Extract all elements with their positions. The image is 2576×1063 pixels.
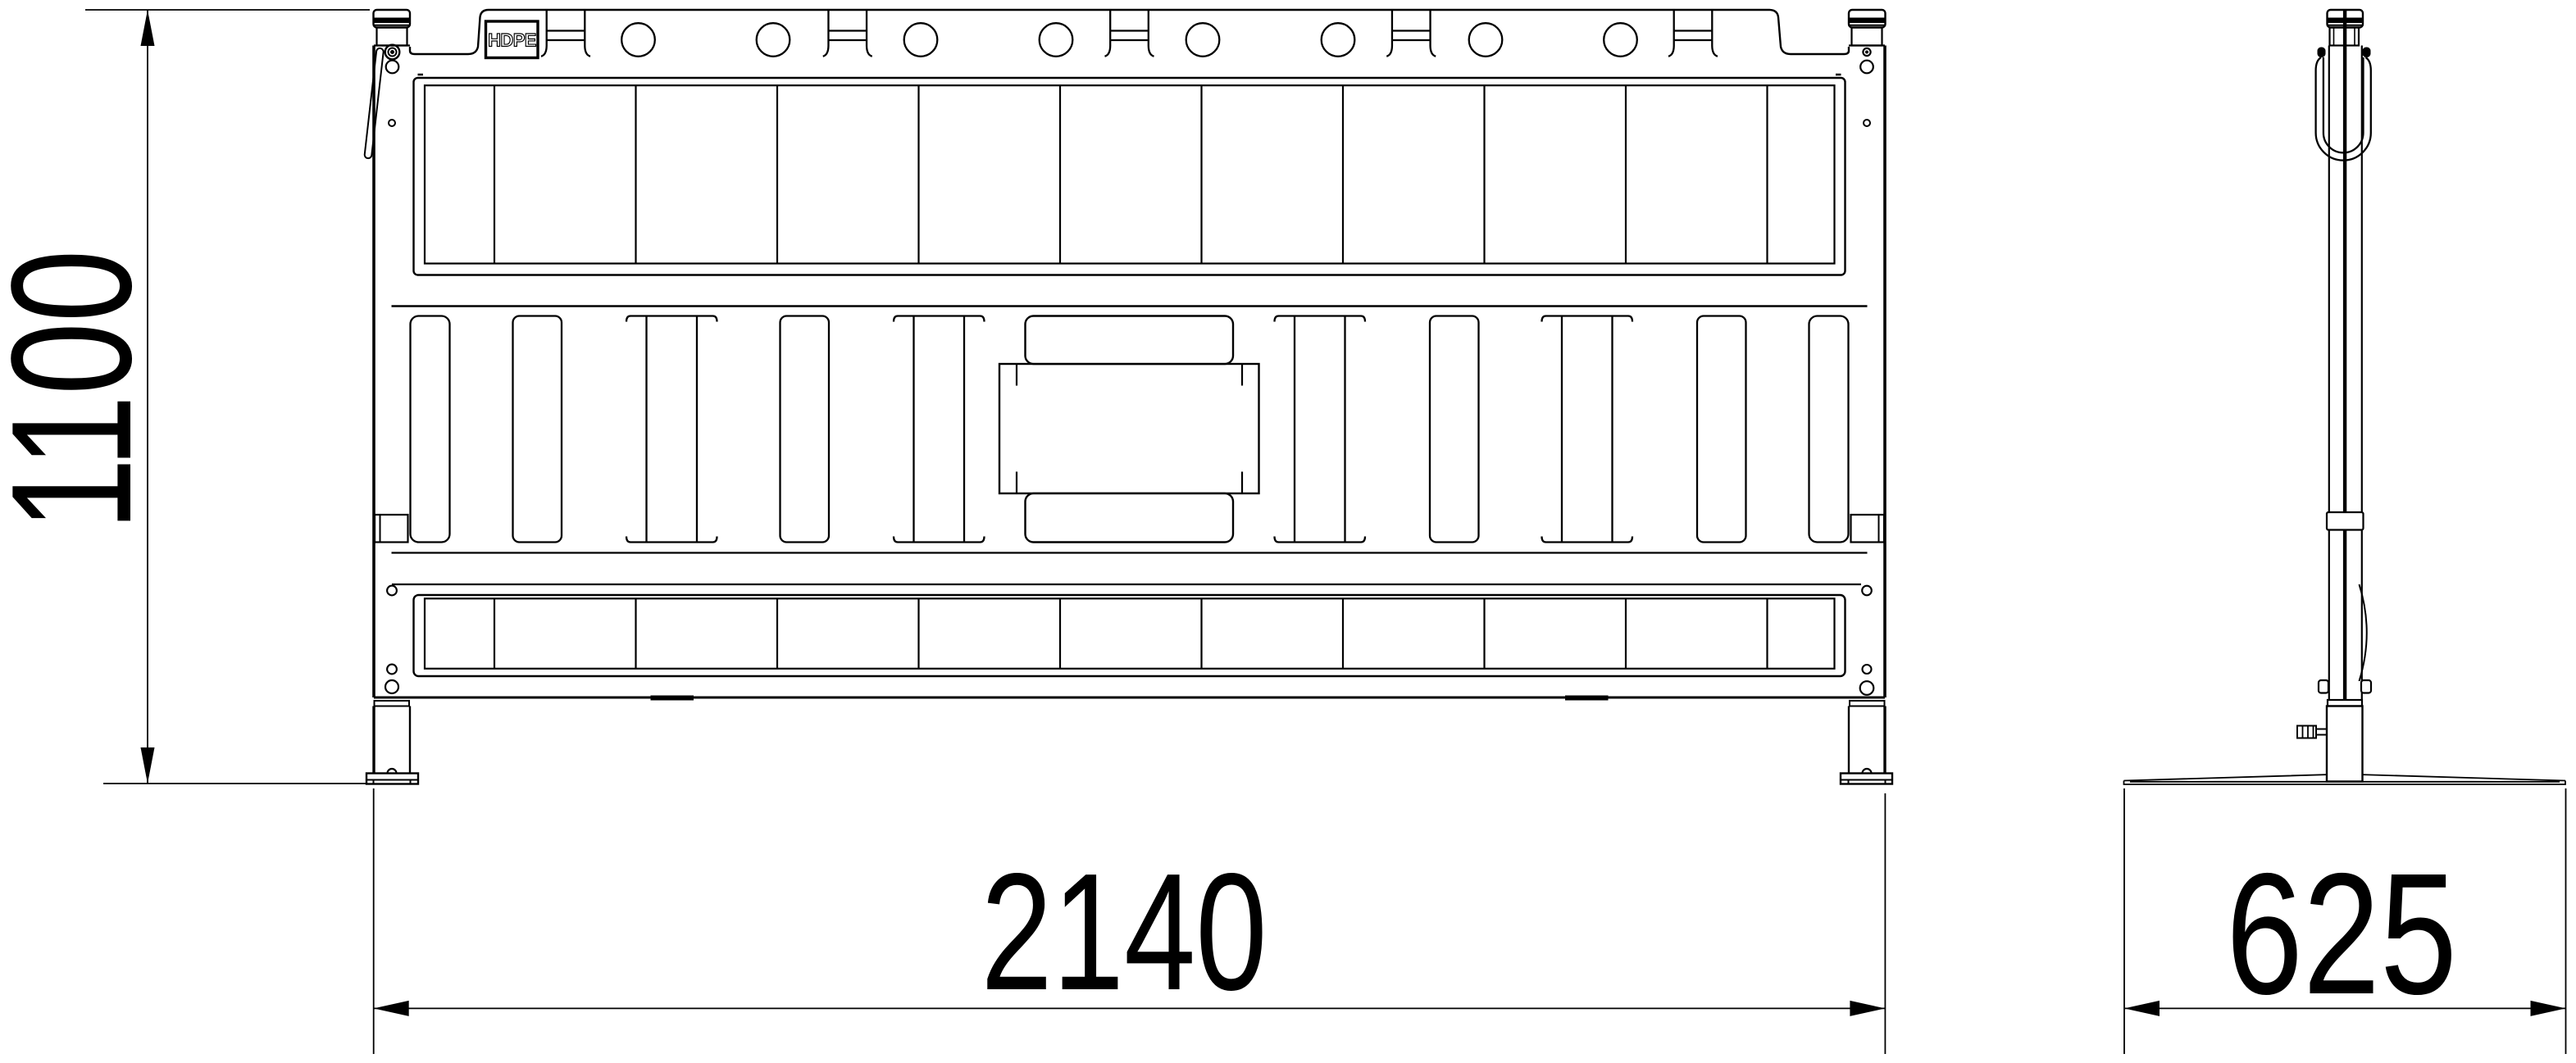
svg-text:1100: 1100 <box>0 250 167 531</box>
svg-text:2140: 2140 <box>981 840 1267 1025</box>
svg-text:HDPE: HDPE <box>488 30 536 51</box>
svg-text:625: 625 <box>2226 838 2457 1030</box>
